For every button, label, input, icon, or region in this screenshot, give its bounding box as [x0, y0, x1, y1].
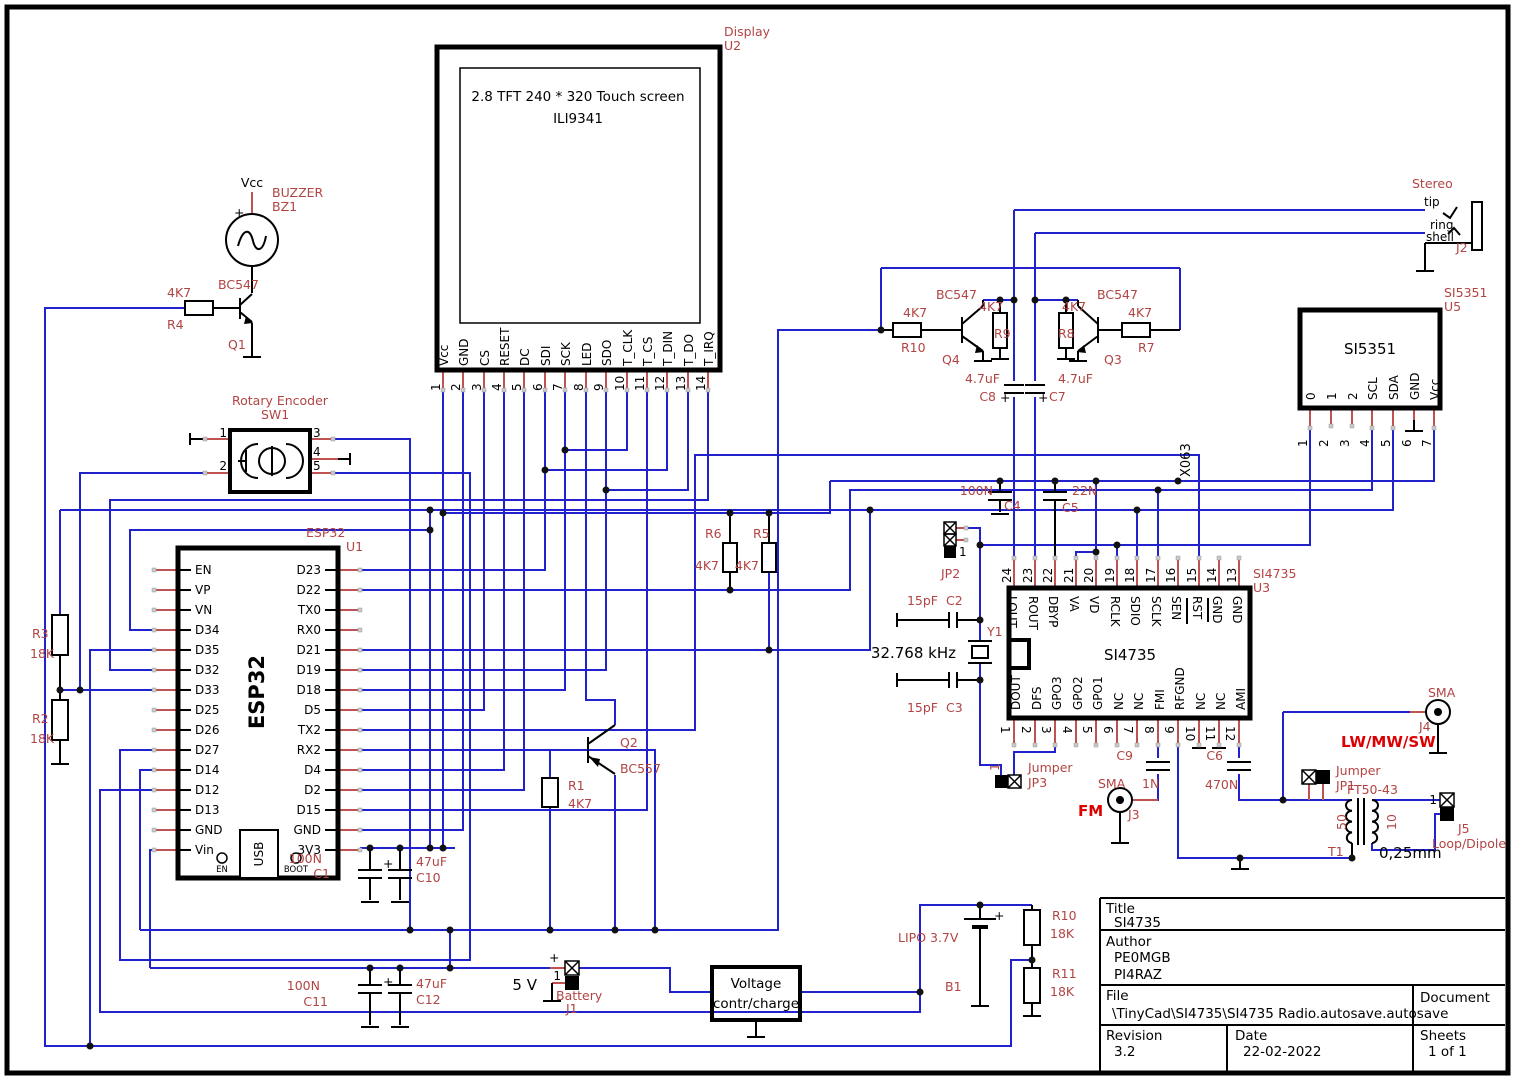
- label: T_DIN: [661, 331, 675, 367]
- label: R7: [1138, 340, 1155, 355]
- label: NC: [1132, 693, 1146, 710]
- label: 12: [653, 376, 667, 391]
- label: 470N: [1205, 777, 1238, 792]
- label: 4K7: [568, 796, 592, 811]
- symbol-graphics: [51, 207, 1472, 1037]
- label: 18K: [1050, 926, 1075, 941]
- label: C1: [313, 866, 330, 881]
- label: ROUT: [1026, 596, 1040, 631]
- label: GPO3: [1050, 676, 1064, 710]
- si4735-name: SI4735: [1104, 646, 1156, 664]
- schematic-canvas: Display U2 2.8 TFT 240 * 320 Touch scree…: [0, 0, 1515, 1080]
- label: D35: [195, 643, 220, 657]
- graphic: [972, 646, 988, 658]
- label: VN: [195, 603, 212, 617]
- label: SDA: [1387, 374, 1401, 400]
- label: 15pF: [907, 700, 938, 715]
- label: 4: [313, 445, 321, 459]
- label: U2: [724, 38, 741, 53]
- label: Jumper: [1335, 763, 1381, 778]
- label: D15: [296, 803, 321, 817]
- label: RCLK: [1108, 596, 1122, 628]
- label: VP: [195, 583, 210, 597]
- graphic: [542, 467, 549, 474]
- label: C8: [979, 389, 996, 404]
- label: U3: [1253, 580, 1270, 595]
- label: 3.2: [1114, 1044, 1135, 1060]
- label: 2: [1019, 726, 1033, 734]
- graphic: [407, 927, 414, 934]
- label: shell: [1426, 230, 1454, 244]
- label: DBYP: [1046, 596, 1060, 627]
- label: 1: [1296, 439, 1310, 447]
- label: 1 of 1: [1428, 1044, 1467, 1060]
- label: Q2: [620, 735, 638, 750]
- graphic: [1114, 542, 1121, 549]
- label: BC547: [936, 287, 977, 302]
- label: 19: [1103, 568, 1117, 583]
- label: T_IRQ: [702, 331, 716, 367]
- label: TX0: [297, 603, 321, 617]
- label: 10: [613, 376, 627, 391]
- graphic: [427, 507, 434, 514]
- label: 4.7uF: [1058, 371, 1093, 386]
- label: J3: [1127, 807, 1140, 822]
- graphic: [1237, 855, 1244, 862]
- label: 4K7: [979, 299, 1003, 314]
- label: 11: [633, 376, 647, 391]
- schematic-page: Display U2 2.8 TFT 240 * 320 Touch scree…: [0, 0, 1515, 1080]
- lwmwsw-net-label: LW/MW/SW: [1341, 733, 1436, 751]
- label: ILI9341: [553, 111, 603, 127]
- graphic: [1011, 297, 1018, 304]
- label: 6: [1400, 439, 1414, 447]
- graphic: [87, 1043, 94, 1050]
- graphic: [727, 587, 734, 594]
- graphic: [944, 546, 956, 558]
- graphic: [652, 927, 659, 934]
- graphic: [944, 522, 956, 534]
- label: D19: [296, 663, 321, 677]
- graphic: [427, 845, 434, 852]
- label: 5 V: [512, 976, 537, 994]
- graphic: [1155, 487, 1162, 494]
- label: B1: [945, 979, 962, 994]
- label: 22N: [1072, 483, 1097, 498]
- label: +: [994, 908, 1004, 923]
- label: X063: [1179, 443, 1194, 477]
- label: 18K: [30, 731, 55, 746]
- label: 1: [959, 545, 967, 559]
- label: SDIO: [1128, 596, 1142, 626]
- graphic: [762, 543, 776, 572]
- graphic: [589, 757, 600, 767]
- graphic: [1029, 957, 1036, 964]
- label: 1: [1429, 793, 1437, 807]
- graphic: [51, 207, 1472, 1037]
- label: 8: [572, 383, 586, 391]
- label: 100N: [960, 483, 993, 498]
- label: 13: [1225, 568, 1239, 583]
- graphic: [447, 965, 454, 972]
- label: Date: [1235, 1028, 1267, 1044]
- label: SCL: [1366, 377, 1380, 400]
- graphic: [542, 778, 558, 807]
- label: 50: [1334, 814, 1349, 830]
- label: BC557: [620, 761, 661, 776]
- wires: [45, 210, 1440, 1046]
- titleblock-file: \TinyCad\SI4735\SI4735 Radio.autosave.au…: [1112, 1006, 1448, 1022]
- si5351-name: SI5351: [1344, 340, 1396, 358]
- graphic: [77, 687, 84, 694]
- label: Q4: [942, 352, 960, 367]
- label: Q1: [228, 337, 246, 352]
- label: Q3: [1104, 352, 1122, 367]
- label: 21: [1062, 568, 1076, 583]
- graphic: [1024, 968, 1040, 1003]
- label: +: [549, 950, 559, 965]
- label: R10: [1052, 908, 1077, 923]
- graphic: [1122, 323, 1150, 337]
- label: 7: [1420, 439, 1434, 447]
- label: DOUT: [1009, 675, 1023, 710]
- graphic: [1009, 640, 1029, 668]
- stereo-label: Stereo: [1412, 176, 1453, 191]
- label: NC: [1112, 693, 1126, 710]
- graphic: [612, 927, 619, 934]
- label: D2: [304, 783, 321, 797]
- label: Vcc: [437, 345, 451, 366]
- label: +: [234, 205, 244, 220]
- graphic: [185, 301, 213, 315]
- label: J1: [565, 1001, 578, 1016]
- label: U1: [346, 539, 363, 554]
- label: Loop/Dipole: [1432, 836, 1506, 851]
- label: 9: [1162, 726, 1176, 734]
- graphic: [1349, 855, 1356, 862]
- label: Sheets: [1420, 1028, 1466, 1044]
- label: R5: [753, 526, 770, 541]
- label: 9: [592, 383, 606, 391]
- label: JP2: [940, 566, 960, 581]
- label: 22: [1041, 568, 1055, 583]
- graphic: [52, 615, 68, 655]
- graphic: [766, 647, 773, 654]
- label: J4: [1418, 719, 1431, 734]
- label: R4: [167, 317, 184, 332]
- label: Vcc: [1428, 379, 1442, 400]
- label: C9: [1116, 748, 1133, 763]
- label: EN: [195, 563, 212, 577]
- label: Revision: [1106, 1028, 1162, 1044]
- graphic: [460, 68, 700, 323]
- label: D21: [296, 643, 321, 657]
- label: 2: [449, 383, 463, 391]
- graphic: [57, 687, 64, 694]
- label: +: [383, 974, 393, 989]
- label: GPO2: [1071, 676, 1085, 710]
- graphic: [447, 927, 454, 934]
- label: 16: [1164, 568, 1178, 583]
- display-title: 2.8 TFT 240 * 320 Touch screen: [471, 89, 684, 105]
- label: BC547: [1097, 287, 1138, 302]
- label: 18: [1123, 568, 1137, 583]
- label: 4K7: [1128, 305, 1152, 320]
- jack-symbol: [1472, 202, 1482, 250]
- label: SW1: [261, 407, 289, 422]
- label: C7: [1049, 389, 1066, 404]
- label: LOUT: [1005, 596, 1019, 628]
- label: GND: [1230, 596, 1244, 624]
- label: DFS: [1030, 686, 1044, 710]
- label: 4: [1358, 439, 1372, 447]
- label: 4K7: [903, 305, 927, 320]
- label: R8: [1058, 326, 1075, 341]
- label: D27: [195, 743, 220, 757]
- graphic: [440, 845, 447, 852]
- graphic: [766, 510, 773, 517]
- label: C6: [1206, 748, 1223, 763]
- label: 1: [553, 969, 561, 983]
- graphic: [603, 487, 610, 494]
- fm-net-label: FM: [1078, 802, 1103, 820]
- label: LIPO 3.7V: [898, 930, 959, 945]
- label: C3: [946, 700, 963, 715]
- voltage-box-label: Voltage: [731, 976, 782, 992]
- graphic: [1280, 797, 1287, 804]
- label: VA: [1067, 596, 1081, 612]
- label: +: [1000, 390, 1010, 405]
- label: SCLK: [1149, 596, 1163, 628]
- label: BOOT: [284, 865, 309, 875]
- label: +: [1038, 390, 1048, 405]
- label: Battery: [556, 988, 603, 1003]
- label: C11: [303, 994, 328, 1009]
- label: TX2: [297, 723, 321, 737]
- graphic: [878, 327, 885, 334]
- label: BZ1: [272, 199, 297, 214]
- en-button: [217, 853, 227, 863]
- label: PE0MGB: [1114, 950, 1171, 966]
- label: 5: [313, 459, 321, 473]
- label: D32: [195, 663, 220, 677]
- label: 17: [1144, 568, 1158, 583]
- label: FT50-43: [1347, 782, 1398, 797]
- graphic: [367, 845, 374, 852]
- label: RESET: [498, 327, 512, 366]
- label: 0: [1304, 392, 1318, 400]
- graphic: [1302, 770, 1316, 784]
- label: D26: [195, 723, 220, 737]
- graphic: [1440, 793, 1454, 807]
- label: R11: [1052, 966, 1077, 981]
- si4735-ref: SI4735: [1253, 566, 1296, 581]
- label: 8: [1142, 726, 1156, 734]
- label: Document: [1420, 990, 1490, 1006]
- label: 3: [1338, 439, 1352, 447]
- label: tip: [1424, 195, 1440, 209]
- label: VD: [1087, 596, 1101, 613]
- graphic: [977, 677, 984, 684]
- label: NC: [1214, 693, 1228, 710]
- label: 23: [1021, 568, 1035, 583]
- label: JP3: [1027, 775, 1047, 790]
- label: PI4RAZ: [1114, 967, 1162, 983]
- label: 4K7: [695, 558, 719, 573]
- label: Vin: [195, 843, 214, 857]
- label: T1: [1327, 844, 1344, 859]
- label: Y1: [986, 624, 1003, 639]
- label: D14: [195, 763, 220, 777]
- graphic: [565, 961, 579, 975]
- label: 1: [987, 763, 1002, 771]
- graphic: [1472, 202, 1482, 250]
- buzzer-label: BUZZER: [272, 185, 324, 200]
- label: D25: [195, 703, 220, 717]
- label: 22-02-2022: [1243, 1044, 1321, 1060]
- label: 13: [674, 376, 688, 391]
- graphic: [917, 989, 924, 996]
- graphic: [1093, 549, 1100, 556]
- graphic: [1175, 478, 1182, 485]
- graphic: [562, 447, 569, 454]
- graphic: [1032, 297, 1039, 304]
- label: R10: [901, 340, 926, 355]
- label: 47uF: [416, 854, 447, 869]
- graphic: [1316, 770, 1330, 784]
- label: 10: [1183, 726, 1197, 741]
- label: C4: [1004, 498, 1021, 513]
- label: File: [1106, 988, 1129, 1004]
- graphic: [1024, 910, 1040, 945]
- label: 47uF: [416, 976, 447, 991]
- label: EN: [216, 865, 228, 875]
- graphic: [893, 323, 921, 337]
- label: LED: [580, 342, 594, 366]
- label: 10: [1384, 814, 1399, 830]
- label: 7: [1121, 726, 1135, 734]
- label: GND: [195, 823, 223, 837]
- label: C10: [416, 870, 441, 885]
- label: Vcc: [241, 175, 263, 190]
- label: 20: [1082, 568, 1096, 583]
- label: 4K7: [735, 558, 759, 573]
- label: R9: [994, 326, 1011, 341]
- crystal-symbol: [972, 646, 988, 658]
- graphic: [727, 510, 734, 517]
- label: 15: [1185, 568, 1199, 583]
- label: C2: [946, 593, 963, 608]
- label: contr/charge: [713, 996, 799, 1012]
- label: 14: [1205, 568, 1219, 583]
- label: 18K: [1050, 984, 1075, 999]
- label: 1: [998, 726, 1012, 734]
- label: D12: [195, 783, 220, 797]
- label: USB: [252, 842, 266, 867]
- graphic: [1434, 708, 1442, 716]
- si5351-ref: SI5351: [1444, 285, 1487, 300]
- label: 1: [1325, 392, 1339, 400]
- label: 2: [1317, 439, 1331, 447]
- label: 11: [1203, 726, 1217, 741]
- label: 100N: [287, 978, 320, 993]
- label: 14: [694, 376, 708, 391]
- label: 15pF: [907, 593, 938, 608]
- label: J2: [1455, 240, 1468, 255]
- label: GND: [457, 338, 471, 366]
- label: SMA: [1098, 776, 1126, 791]
- label: 4K7: [1062, 299, 1086, 314]
- graphic: [977, 902, 984, 909]
- label: D23: [296, 563, 321, 577]
- graphic: [427, 527, 434, 534]
- label: D5: [304, 703, 321, 717]
- label: SDI: [539, 346, 553, 366]
- label: SEN: [1169, 596, 1183, 620]
- graphic: [995, 775, 1008, 788]
- graphic: [440, 510, 447, 517]
- graphic: [397, 845, 404, 852]
- graphic: [397, 965, 404, 972]
- label: 100N: [289, 851, 322, 866]
- label: 7: [551, 383, 565, 391]
- label: 4: [1060, 726, 1074, 734]
- label: AMI: [1234, 688, 1248, 710]
- label: 6: [1101, 726, 1115, 734]
- label: 1: [219, 426, 227, 440]
- label: 3: [470, 383, 484, 391]
- label: T_CS: [641, 337, 655, 367]
- label: RX2: [297, 743, 321, 757]
- label: D22: [296, 583, 321, 597]
- esp32-name: ESP32: [245, 655, 269, 729]
- label: RX0: [297, 623, 321, 637]
- label: 4K7: [167, 285, 191, 300]
- label: D34: [195, 623, 220, 637]
- esp32-ref: ESP32: [306, 525, 345, 540]
- label: R1: [568, 778, 585, 793]
- label: R3: [32, 626, 49, 641]
- graphic: [547, 927, 554, 934]
- label: 2: [1346, 392, 1360, 400]
- graphic: [1372, 800, 1378, 843]
- encoder-label: Rotary Encoder: [232, 393, 329, 408]
- label: C5: [1062, 500, 1079, 515]
- graphic: [367, 965, 374, 972]
- label: NC: [1194, 693, 1208, 710]
- graphic: [977, 617, 984, 624]
- graphic: [867, 507, 874, 514]
- label: 2: [219, 459, 227, 473]
- label: T_DO: [682, 334, 696, 367]
- label: 6: [531, 383, 545, 391]
- graphic: [1116, 796, 1124, 804]
- label: CS: [478, 350, 492, 366]
- label: GND: [1408, 372, 1422, 400]
- label: 32.768 kHz: [871, 644, 956, 662]
- graphic: [977, 542, 984, 549]
- label: C12: [416, 992, 441, 1007]
- label: 5: [1080, 726, 1094, 734]
- graphic: [1440, 807, 1454, 821]
- label: GND: [293, 823, 321, 837]
- label: D18: [296, 683, 321, 697]
- label: RFGND: [1173, 667, 1187, 710]
- graphic: [997, 478, 1004, 485]
- label: U5: [1444, 299, 1461, 314]
- label: J5: [1457, 821, 1470, 836]
- rotary-encoder-symbol: [230, 430, 310, 492]
